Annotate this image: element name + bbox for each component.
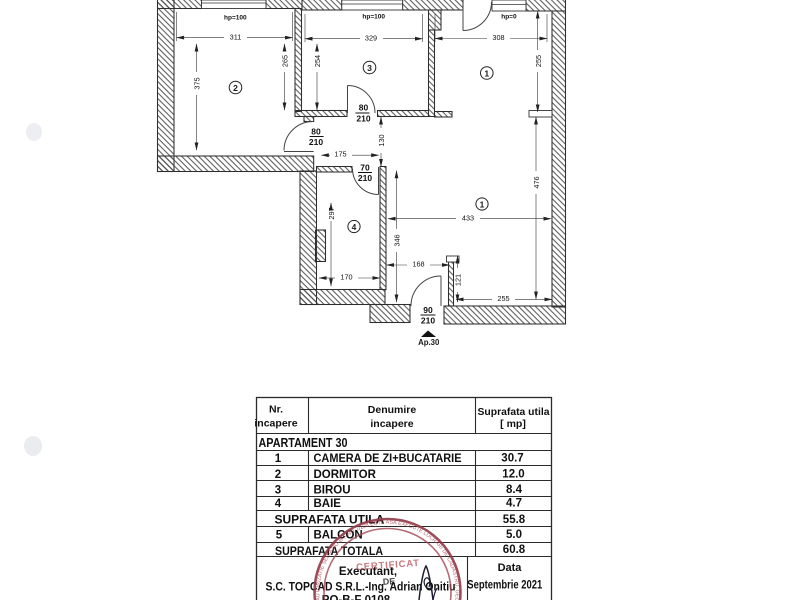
svg-text:8.4: 8.4 [506, 484, 523, 496]
svg-text:incapere: incapere [370, 418, 413, 430]
svg-text:175: 175 [334, 150, 346, 159]
svg-text:90: 90 [423, 305, 433, 315]
svg-text:2: 2 [275, 469, 281, 481]
svg-text:168: 168 [412, 260, 424, 269]
svg-text:Data: Data [498, 562, 523, 574]
svg-text:3: 3 [367, 63, 372, 73]
svg-text:DORMITOR: DORMITOR [314, 469, 377, 481]
svg-text:254: 254 [313, 55, 322, 67]
svg-text:1: 1 [275, 453, 282, 465]
svg-text:210: 210 [358, 173, 372, 183]
svg-text:476: 476 [532, 176, 541, 188]
svg-text:297: 297 [327, 207, 336, 219]
svg-text:433: 433 [462, 213, 474, 222]
svg-text:210: 210 [356, 114, 370, 124]
svg-text:311: 311 [230, 32, 242, 41]
svg-text:DE: DE [382, 576, 395, 587]
svg-text:3: 3 [275, 484, 281, 496]
svg-text:5.0: 5.0 [506, 529, 522, 541]
svg-text:hp=0: hp=0 [501, 14, 517, 21]
svg-text:BAIE: BAIE [314, 498, 342, 510]
svg-text:CERTIFICAT: CERTIFICAT [356, 558, 420, 573]
svg-text:255: 255 [534, 55, 543, 67]
svg-text:4: 4 [275, 498, 282, 510]
svg-text:308: 308 [492, 33, 504, 42]
svg-text:5: 5 [276, 530, 283, 542]
svg-text:121: 121 [454, 274, 463, 286]
svg-text:170: 170 [340, 273, 352, 282]
svg-text:265: 265 [281, 55, 290, 67]
svg-text:hp=100: hp=100 [224, 15, 247, 22]
svg-text:CAMERA DE ZI+BUCATARIE: CAMERA DE ZI+BUCATARIE [314, 453, 462, 465]
svg-text:55.8: 55.8 [503, 514, 526, 526]
svg-text:210: 210 [309, 137, 323, 147]
svg-text:375: 375 [193, 77, 202, 89]
svg-text:346: 346 [393, 234, 402, 246]
svg-text:130: 130 [377, 134, 386, 146]
svg-text:80: 80 [359, 103, 369, 113]
svg-text:Denumire: Denumire [368, 404, 417, 416]
svg-text:70: 70 [360, 163, 370, 173]
svg-text:PO-B-F 0108: PO-B-F 0108 [322, 595, 391, 600]
svg-text:329: 329 [365, 33, 377, 42]
svg-text:210: 210 [421, 315, 435, 325]
svg-text:4.7: 4.7 [506, 498, 522, 510]
svg-text:incapere: incapere [254, 418, 297, 430]
svg-text:hp=100: hp=100 [362, 14, 385, 21]
svg-text:30.7: 30.7 [501, 453, 523, 465]
svg-text:Septembrie 2021: Septembrie 2021 [467, 580, 542, 592]
svg-text:APARTAMENT 30: APARTAMENT 30 [259, 436, 348, 450]
svg-text:4: 4 [352, 222, 357, 232]
svg-text:255: 255 [497, 294, 509, 303]
svg-text:Suprafata utila: Suprafata utila [478, 406, 550, 418]
svg-text:BIROU: BIROU [314, 484, 351, 496]
svg-text:Nr.: Nr. [269, 404, 283, 416]
svg-text:80: 80 [311, 127, 321, 137]
svg-text:1: 1 [480, 200, 485, 210]
svg-text:60.8: 60.8 [503, 544, 526, 556]
svg-text:12.0: 12.0 [502, 468, 524, 480]
svg-text:[ mp]: [ mp] [500, 418, 526, 430]
svg-text:1: 1 [484, 69, 489, 79]
svg-text:2: 2 [233, 83, 238, 93]
svg-text:Ap.30: Ap.30 [418, 338, 440, 347]
